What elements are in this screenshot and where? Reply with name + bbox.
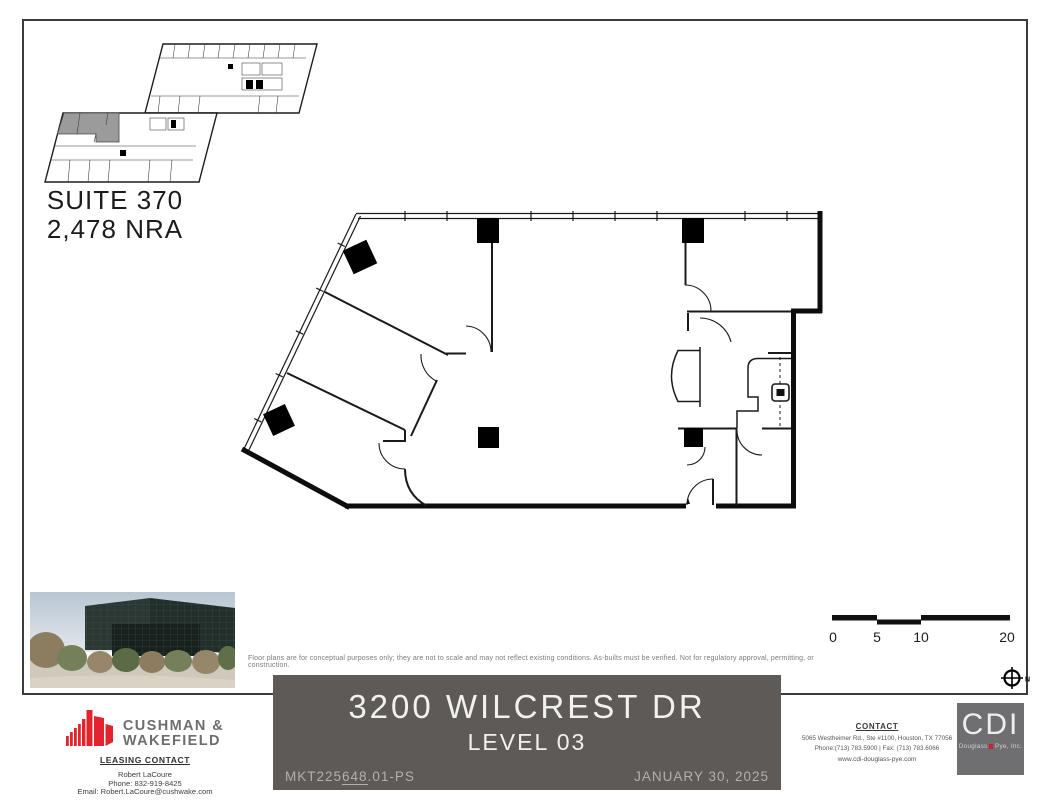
floor-level: LEVEL 03	[273, 729, 781, 756]
cdi-sub-right: Pye, Inc.	[995, 743, 1022, 750]
electrical-panel-icon	[772, 384, 789, 401]
scale-label-5: 5	[873, 629, 881, 645]
flyer-page: SUITE 370 2,478 NRA	[0, 0, 1054, 809]
brand-line1: CUSHMAN &	[123, 719, 224, 734]
doc-number-mid: 648	[342, 769, 368, 785]
north-compass-icon: N	[998, 664, 1034, 694]
suite-area: 2,478 NRA	[35, 215, 195, 244]
key-plan	[30, 36, 340, 194]
interior-partitions	[287, 243, 791, 506]
leasing-contact-block: CUSHMAN & WAKEFIELD LEASING CONTACT Robe…	[45, 708, 245, 797]
document-number: MKT225648.01-PS	[285, 769, 415, 784]
building-photo	[30, 592, 235, 688]
cdi-logo-text: CDI	[957, 710, 1024, 740]
disclaimer-text: Floor plans are for conceptual purposes …	[248, 655, 833, 669]
cdi-contact-heading: CONTACT	[798, 722, 956, 731]
doc-number-prefix: MKT225	[285, 769, 342, 784]
plan-date: JANUARY 30, 2025	[634, 769, 769, 784]
window-walls	[243, 211, 820, 453]
main-floor-plan	[235, 205, 835, 515]
cdi-address: 5065 Westheimer Rd., Ste #1100, Houston,…	[798, 734, 956, 744]
scale-bar: 0 5 10 20	[825, 608, 1020, 653]
leasing-contact-email[interactable]: Email: Robert.LaCoure@cushwake.com	[45, 788, 245, 797]
brand-line2: WAKEFIELD	[123, 734, 224, 749]
cdi-contact-block: CONTACT 5065 Westheimer Rd., Ste #1100, …	[798, 722, 956, 763]
demising-walls	[242, 211, 822, 508]
north-label: N	[1025, 677, 1030, 684]
cdi-sub-left: Douglass	[959, 743, 988, 750]
leasing-contact-heading: LEASING CONTACT	[45, 755, 245, 765]
title-block: 3200 WILCREST DR LEVEL 03 MKT225648.01-P…	[273, 675, 781, 790]
cdi-website[interactable]: www.cdi-douglass-pye.com	[798, 756, 956, 763]
scale-label-20: 20	[999, 629, 1015, 645]
property-address: 3200 WILCREST DR	[273, 688, 781, 726]
cushman-wakefield-logo: CUSHMAN & WAKEFIELD	[45, 708, 245, 748]
suite-label: SUITE 370 2,478 NRA	[35, 186, 195, 244]
door-swings	[379, 285, 762, 505]
cdi-red-square-icon	[989, 744, 994, 749]
cdi-logo: CDI Douglass Pye, Inc.	[957, 703, 1024, 775]
scale-label-10: 10	[913, 629, 929, 645]
cdi-phone-fax: Phone:(713) 783.5900 | Fax: (713) 783.60…	[798, 744, 956, 754]
doc-number-suffix: .01-PS	[368, 769, 415, 784]
cushman-wakefield-wordmark: CUSHMAN & WAKEFIELD	[123, 719, 224, 748]
suite-number: SUITE 370	[35, 186, 195, 215]
scale-label-0: 0	[829, 629, 837, 645]
cushman-wakefield-logo-icon	[66, 708, 116, 748]
entry-arrow-icon	[686, 498, 690, 504]
